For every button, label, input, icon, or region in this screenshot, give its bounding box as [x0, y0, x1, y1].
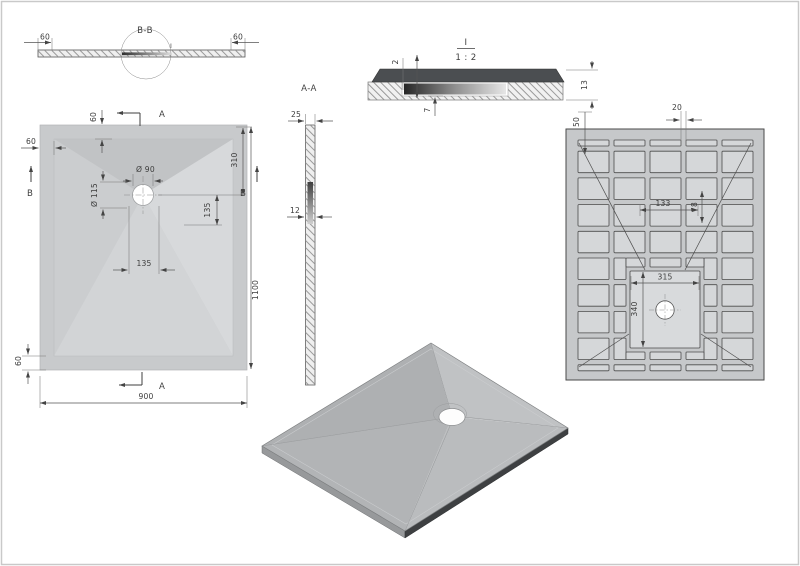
rib-pocket [650, 151, 681, 173]
aa-recess-gradient [308, 182, 314, 224]
svg-text:315: 315 [657, 273, 672, 282]
bottom-view: 50 20 133 78 315 340 [566, 103, 764, 380]
rib-pocket [614, 231, 645, 253]
svg-text:B: B [27, 189, 33, 199]
svg-text:135: 135 [203, 202, 212, 217]
svg-text:135: 135 [136, 259, 151, 268]
svg-text:60: 60 [233, 33, 243, 42]
svg-text:60: 60 [89, 112, 98, 122]
svg-text:Ø 90: Ø 90 [136, 165, 155, 174]
section-aa-title: A-A [301, 84, 317, 94]
svg-text:1100: 1100 [251, 280, 260, 300]
svg-text:13: 13 [580, 80, 589, 90]
rib-pocket [626, 258, 645, 267]
rib-pocket [578, 365, 609, 371]
rib-pocket [650, 365, 681, 371]
rib-pocket [650, 231, 681, 253]
rib-pocket [704, 258, 717, 280]
svg-text:60: 60 [26, 137, 36, 146]
rib-pocket [704, 338, 717, 360]
rib-pocket [614, 151, 645, 173]
rib-pocket [578, 178, 609, 200]
rib-pocket [704, 285, 717, 307]
rib-pocket [578, 258, 609, 280]
svg-text:25: 25 [291, 110, 301, 119]
svg-text:60: 60 [14, 356, 23, 366]
svg-text:78: 78 [690, 202, 699, 212]
svg-text:20: 20 [672, 103, 682, 112]
svg-text:A: A [159, 110, 165, 120]
detail-recess-gradient [404, 84, 506, 95]
rib-pocket [578, 151, 609, 173]
rib-pocket [686, 178, 717, 200]
rib-pocket [614, 258, 626, 280]
rib-pocket [686, 140, 717, 146]
rib-pocket [614, 140, 645, 146]
svg-text:12: 12 [290, 206, 300, 215]
rib-pocket [686, 365, 717, 371]
rib-pocket [722, 140, 753, 146]
rib-pocket [578, 338, 609, 360]
aa-hatch [306, 125, 316, 385]
rib-pocket [614, 205, 645, 227]
rib-pocket [614, 311, 626, 333]
rib-pocket [650, 258, 681, 267]
drawing-sheet: B-B I 60 60 60 [0, 0, 800, 566]
bb-recess-gradient [122, 52, 170, 55]
rib-pocket [686, 231, 717, 253]
svg-text:2: 2 [391, 59, 400, 64]
section-bb-title: B-B [137, 26, 153, 36]
drawing-canvas: B-B I 60 60 60 [0, 0, 800, 566]
svg-text:60: 60 [40, 33, 50, 42]
rib-pocket [722, 338, 753, 360]
rib-pocket [650, 140, 681, 146]
svg-text:133: 133 [655, 199, 670, 208]
svg-text:7: 7 [423, 107, 432, 112]
rib-pocket [614, 285, 626, 307]
rib-pocket [722, 285, 753, 307]
rib-pocket [614, 365, 645, 371]
rib-pocket [578, 285, 609, 307]
rib-pocket [704, 311, 717, 333]
svg-text:340: 340 [630, 301, 639, 316]
rib-pocket [722, 258, 753, 280]
svg-text:B: B [240, 189, 246, 199]
svg-text:Ø 115: Ø 115 [90, 183, 99, 207]
svg-text:310: 310 [230, 152, 239, 167]
detail-mark-label: I [170, 42, 172, 50]
rib-pocket [626, 352, 645, 360]
detail-top-layer [372, 69, 564, 82]
rib-pocket [722, 231, 753, 253]
rib-pocket [578, 311, 609, 333]
svg-text:A: A [159, 382, 165, 392]
rib-pocket [722, 311, 753, 333]
rib-pocket [650, 352, 681, 360]
rib-pocket [686, 352, 704, 360]
rib-pocket [578, 140, 609, 146]
rib-pocket [578, 231, 609, 253]
plan-view: 60 60 Ø 90 Ø 115 3 [14, 110, 260, 408]
rib-pocket [722, 205, 753, 227]
rib-pocket [722, 178, 753, 200]
rib-pocket [614, 338, 626, 360]
rib-pocket [686, 151, 717, 173]
svg-text:50: 50 [572, 117, 581, 127]
rib-pocket [650, 178, 681, 200]
rib-pocket [578, 205, 609, 227]
iso-drain-hole [439, 409, 465, 426]
svg-text:900: 900 [138, 392, 153, 401]
rib-pocket [722, 365, 753, 371]
detail-scale: 1 : 2 [455, 53, 476, 63]
detail-title: I [465, 38, 468, 48]
rib-pocket [614, 178, 645, 200]
